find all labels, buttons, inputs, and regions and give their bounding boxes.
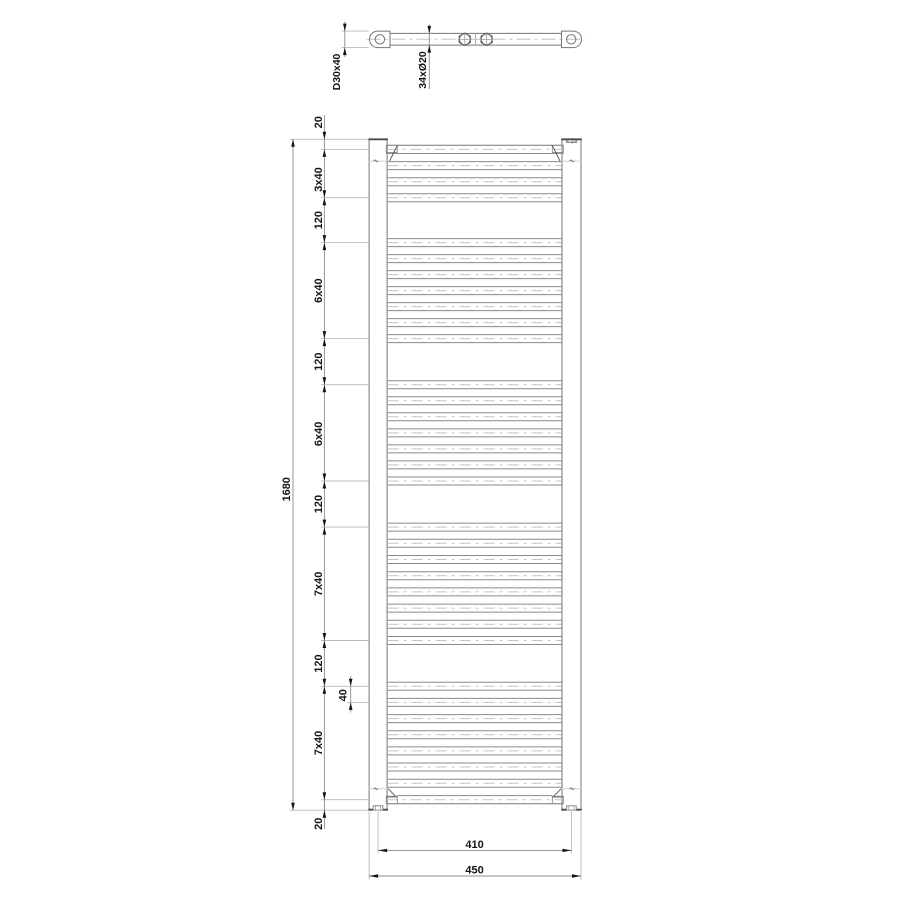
svg-text:6x40: 6x40 xyxy=(313,278,325,302)
svg-text:7x40: 7x40 xyxy=(313,572,325,596)
svg-text:34xØ20: 34xØ20 xyxy=(417,51,429,89)
svg-text:7x40: 7x40 xyxy=(313,731,325,755)
svg-text:120: 120 xyxy=(313,654,325,672)
svg-text:6x40: 6x40 xyxy=(313,422,325,446)
svg-text:40: 40 xyxy=(338,689,350,701)
svg-text:410: 410 xyxy=(465,839,483,851)
svg-text:20: 20 xyxy=(313,818,325,830)
svg-text:120: 120 xyxy=(313,353,325,371)
svg-text:D30x40: D30x40 xyxy=(331,53,343,90)
svg-text:120: 120 xyxy=(313,495,325,513)
svg-text:3x40: 3x40 xyxy=(313,167,325,191)
svg-text:20: 20 xyxy=(313,116,325,128)
svg-text:450: 450 xyxy=(465,864,483,876)
svg-text:1680: 1680 xyxy=(281,477,293,501)
svg-text:120: 120 xyxy=(313,211,325,229)
